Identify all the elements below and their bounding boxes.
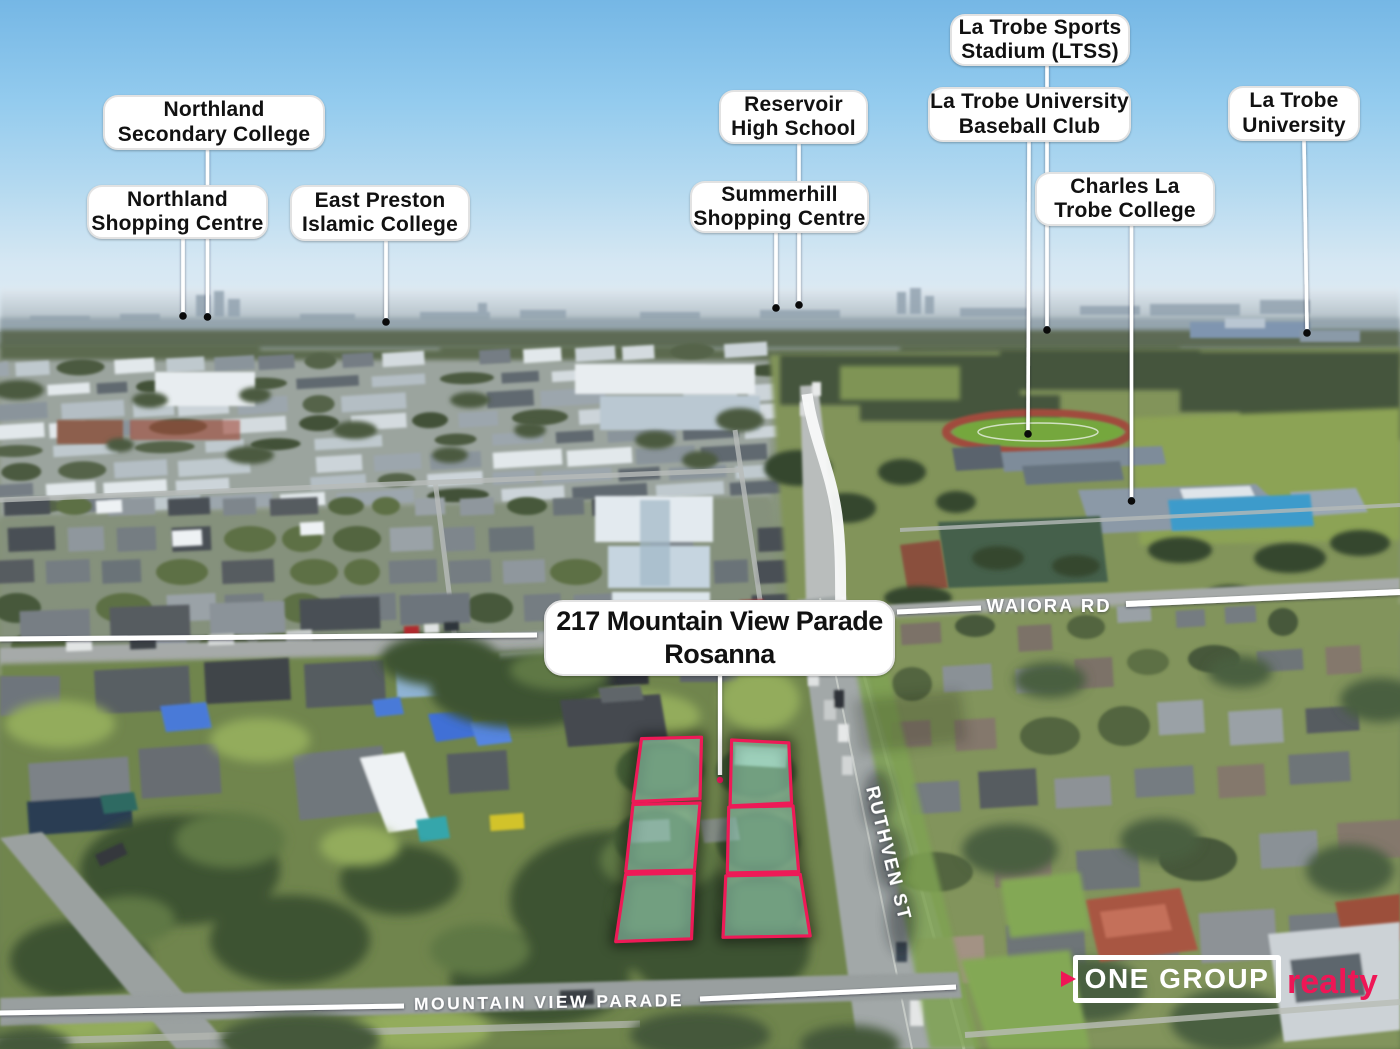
svg-text:MOUNTAIN VIEW PARADE: MOUNTAIN VIEW PARADE [414,990,684,1014]
svg-text:WAIORA RD: WAIORA RD [986,595,1111,616]
